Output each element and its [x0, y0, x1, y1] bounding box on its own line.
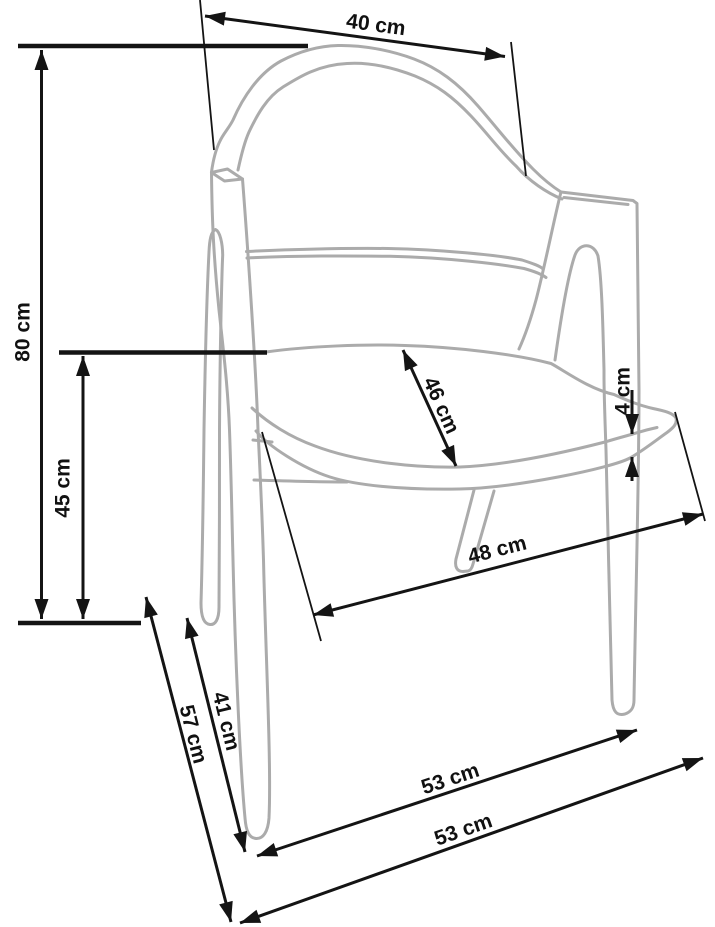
svg-text:45 cm: 45 cm	[52, 458, 75, 518]
svg-text:80 cm: 80 cm	[12, 302, 35, 362]
svg-text:4 cm: 4 cm	[612, 367, 635, 415]
